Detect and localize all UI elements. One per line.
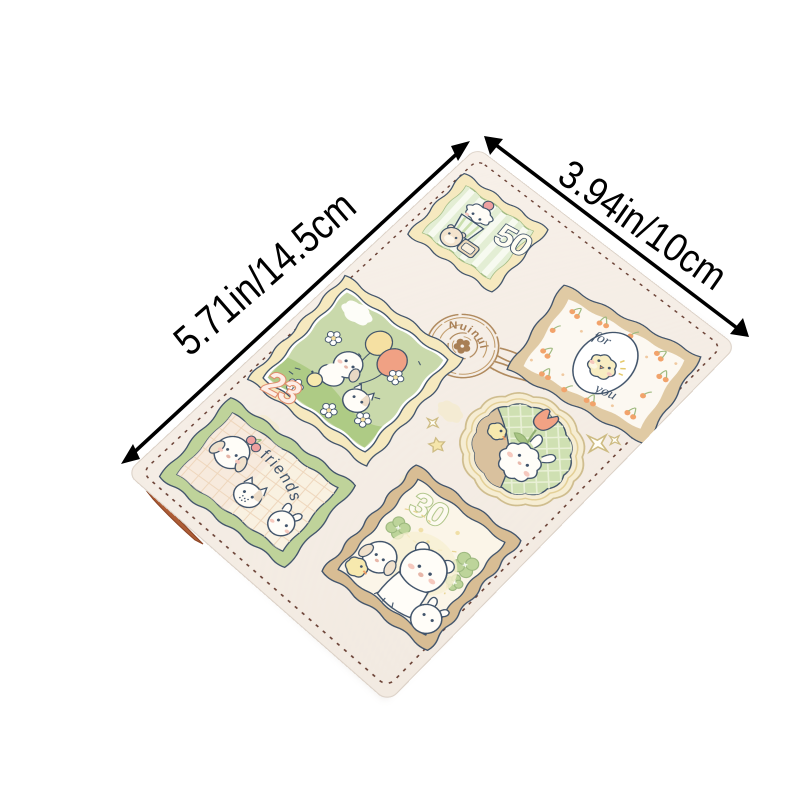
svg-text:5.71in/14.5cm: 5.71in/14.5cm <box>165 182 365 364</box>
svg-text:3.94in/10cm: 3.94in/10cm <box>550 152 734 299</box>
